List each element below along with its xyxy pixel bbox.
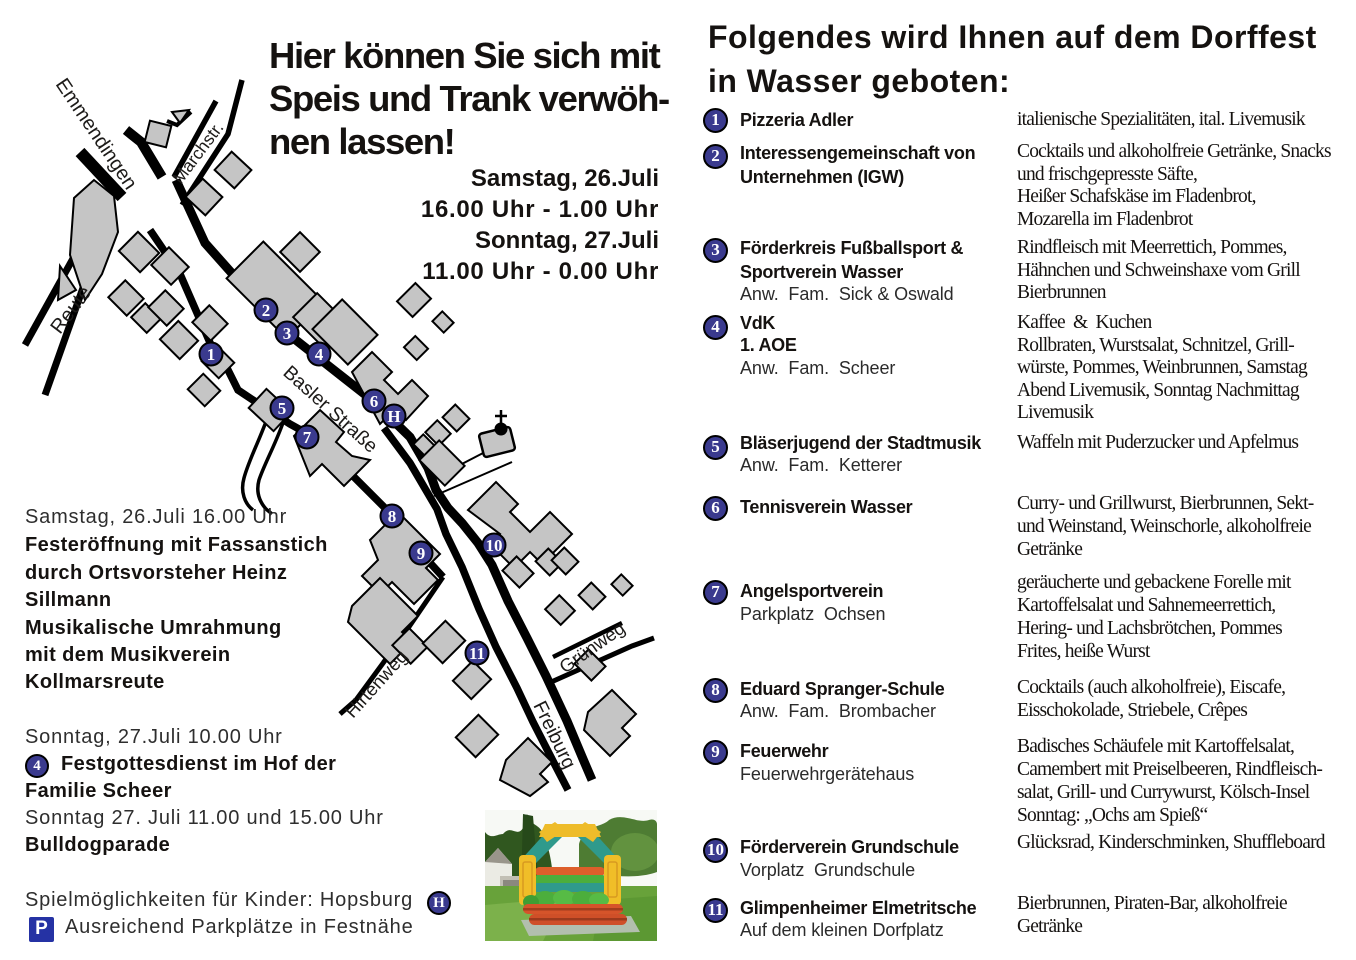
svg-text:5: 5 (278, 399, 287, 418)
svg-text:2: 2 (262, 301, 271, 320)
svg-text:8: 8 (388, 507, 397, 526)
svg-text:10: 10 (486, 536, 503, 555)
svg-text:3: 3 (283, 324, 292, 343)
svg-text:6: 6 (370, 392, 379, 411)
svg-text:4: 4 (315, 345, 324, 364)
svg-text:7: 7 (303, 428, 312, 447)
svg-text:H: H (387, 407, 400, 426)
svg-text:9: 9 (417, 544, 426, 563)
svg-text:11: 11 (469, 644, 485, 663)
svg-text:1: 1 (207, 345, 216, 364)
svg-text:Hirtenweg: Hirtenweg (340, 646, 411, 722)
